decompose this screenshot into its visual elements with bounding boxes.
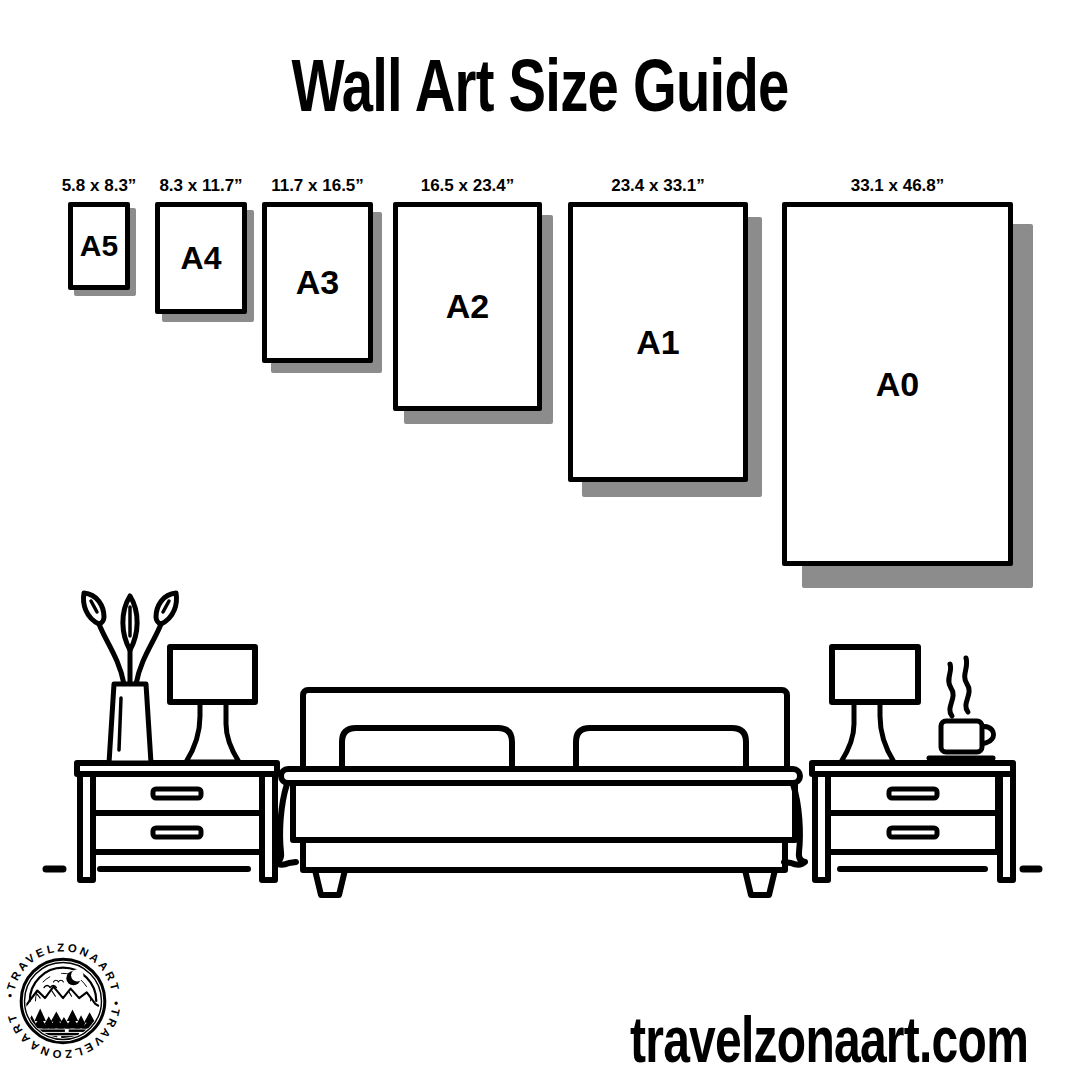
size-dimensions-label-a5: 5.8 x 8.3” <box>62 176 137 196</box>
drawer-handle <box>153 789 201 798</box>
arch-icon <box>30 968 97 1001</box>
paper-rect-a1: A1 <box>568 202 748 482</box>
paper-rect-a4: A4 <box>155 202 247 314</box>
nightstand-right-icon <box>812 763 1013 880</box>
pine-trees-icon <box>25 1009 97 1029</box>
drawer-handle <box>889 828 937 837</box>
vase <box>109 684 151 763</box>
size-code-a1: A1 <box>636 323 679 362</box>
bed-leg <box>745 870 775 895</box>
bird-icon <box>54 980 64 982</box>
size-code-a4: A4 <box>181 240 222 277</box>
paper-rect-a2: A2 <box>393 202 542 411</box>
bed-icon <box>275 690 805 895</box>
plant-icon <box>84 593 177 763</box>
size-block-a0: 33.1 x 46.8” A0 <box>782 202 1013 566</box>
drawer-handle <box>153 828 201 837</box>
coffee-cup-icon <box>929 658 994 758</box>
size-code-a2: A2 <box>446 287 489 326</box>
drawer-handle <box>889 789 937 798</box>
size-block-a5: 5.8 x 8.3” A5 <box>68 202 130 290</box>
website-url: travelzonaart.com <box>630 1008 1020 1072</box>
size-dimensions-label-a2: 16.5 x 23.4” <box>421 176 515 196</box>
nightstand-left-icon <box>77 763 277 880</box>
paper-rect-a3: A3 <box>262 202 373 363</box>
bed-leg <box>315 870 345 895</box>
size-dimensions-label-a1: 23.4 x 33.1” <box>611 176 705 196</box>
lamp-right-icon <box>832 647 918 762</box>
mattress <box>293 783 795 840</box>
size-code-a0: A0 <box>876 365 919 404</box>
lamp-left-icon <box>170 647 255 762</box>
size-code-a3: A3 <box>296 263 339 302</box>
bed-frame <box>303 840 785 870</box>
moon-icon <box>66 969 83 985</box>
size-dimensions-label-a4: 8.3 x 11.7” <box>159 176 242 196</box>
brand-logo: •TRAVELZONAART •TRAVELZONAART <box>6 940 120 1060</box>
size-dimensions-label-a0: 33.1 x 46.8” <box>851 176 945 196</box>
size-code-a5: A5 <box>80 229 118 263</box>
paper-rect-a5: A5 <box>68 202 130 290</box>
size-block-a3: 11.7 x 16.5” A3 <box>262 202 373 363</box>
size-block-a1: 23.4 x 33.1” A1 <box>568 202 748 482</box>
size-dimensions-label-a3: 11.7 x 16.5” <box>271 176 364 196</box>
size-block-a4: 8.3 x 11.7” A4 <box>155 202 247 314</box>
paper-rect-a0: A0 <box>782 202 1013 566</box>
steam-icon <box>965 658 969 712</box>
bedroom-illustration <box>0 585 1080 905</box>
wall-art-size-guide: Wall Art Size Guide 5.8 x 8.3” A5 8.3 x … <box>0 0 1080 1080</box>
steam-icon <box>949 664 953 716</box>
page-title: Wall Art Size Guide <box>130 49 951 123</box>
size-block-a2: 16.5 x 23.4” A2 <box>393 202 542 411</box>
mountains-icon <box>26 987 98 1006</box>
